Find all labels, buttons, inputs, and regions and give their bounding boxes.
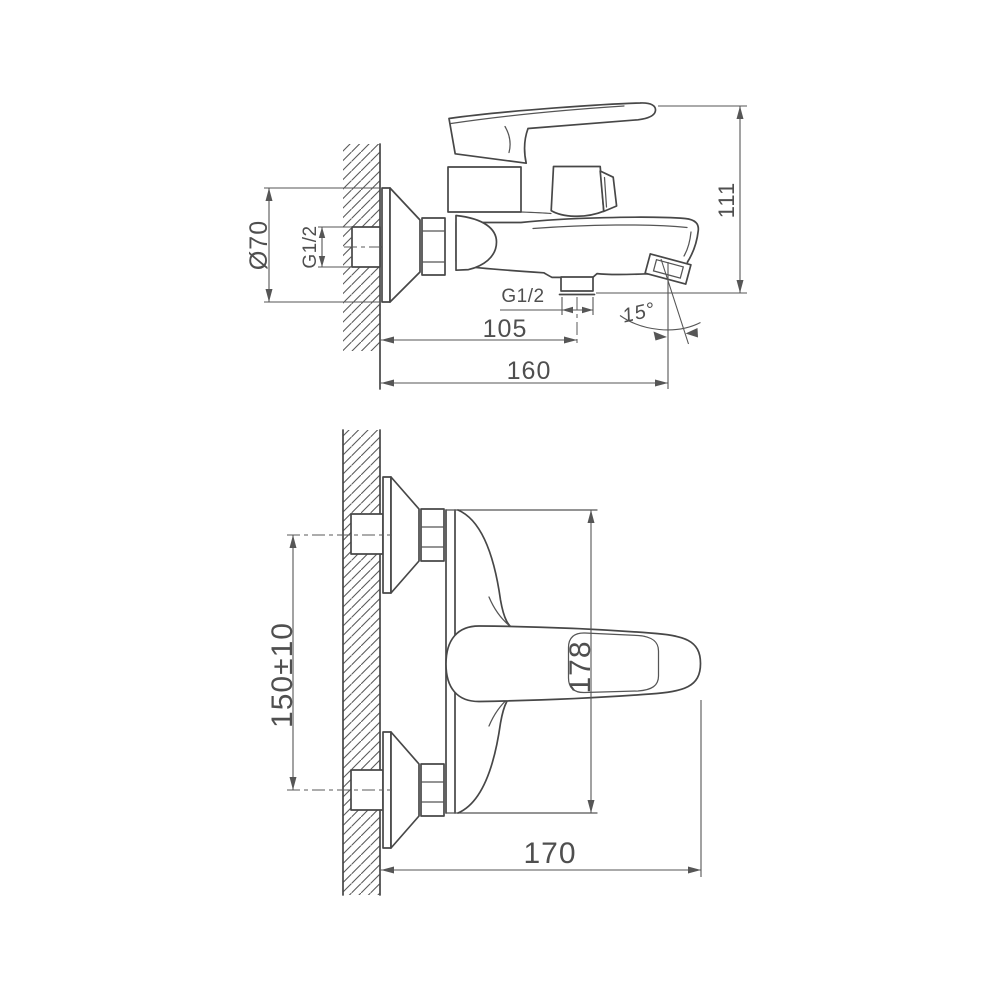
dim-spout-angle-15: 15°: [620, 259, 701, 389]
upper-hex-nut: [421, 509, 444, 561]
diverter-tab: [600, 171, 616, 211]
dim-body-width-178: 178: [564, 510, 597, 813]
shower-outlet: [561, 277, 593, 291]
dim-label-g12-inlet: G1/2: [300, 225, 321, 268]
dim-label-111: 111: [714, 182, 739, 218]
escutcheon-cone: [390, 188, 420, 302]
dim-label-15deg: 15°: [620, 299, 657, 328]
dim-outlet-offset-105: 105: [380, 315, 577, 344]
dim-label-160: 160: [507, 357, 552, 385]
technical-drawing-page: Ø70 G1/2 111 G1/2: [0, 0, 1000, 1000]
dim-depth-160: 160: [380, 357, 668, 387]
faucet-dimension-drawing: Ø70 G1/2 111 G1/2: [0, 0, 1000, 1000]
body-cap: [448, 167, 521, 212]
upper-inlet-nipple: [351, 514, 383, 554]
dim-label-phi70: Ø70: [245, 220, 273, 270]
dim-label-105: 105: [483, 315, 528, 343]
plan-view: 150±10 178 170: [266, 430, 701, 895]
lower-hex-nut: [421, 764, 444, 816]
escutcheon-plate: [382, 188, 390, 302]
wall-hatch: [343, 430, 380, 895]
dim-label-178: 178: [564, 640, 597, 693]
diverter-knob: [551, 167, 604, 217]
dim-label-150: 150±10: [266, 622, 299, 728]
lower-escutcheon-cone: [391, 732, 419, 848]
upper-escutcheon-cone: [391, 477, 419, 593]
dim-label-170: 170: [523, 837, 576, 870]
dim-label-g12-outlet: G1/2: [501, 286, 544, 307]
hex-nut: [422, 218, 445, 275]
side-view: Ø70 G1/2 111 G1/2: [245, 103, 747, 389]
dim-inlet-spacing-150: 150±10: [266, 535, 299, 790]
